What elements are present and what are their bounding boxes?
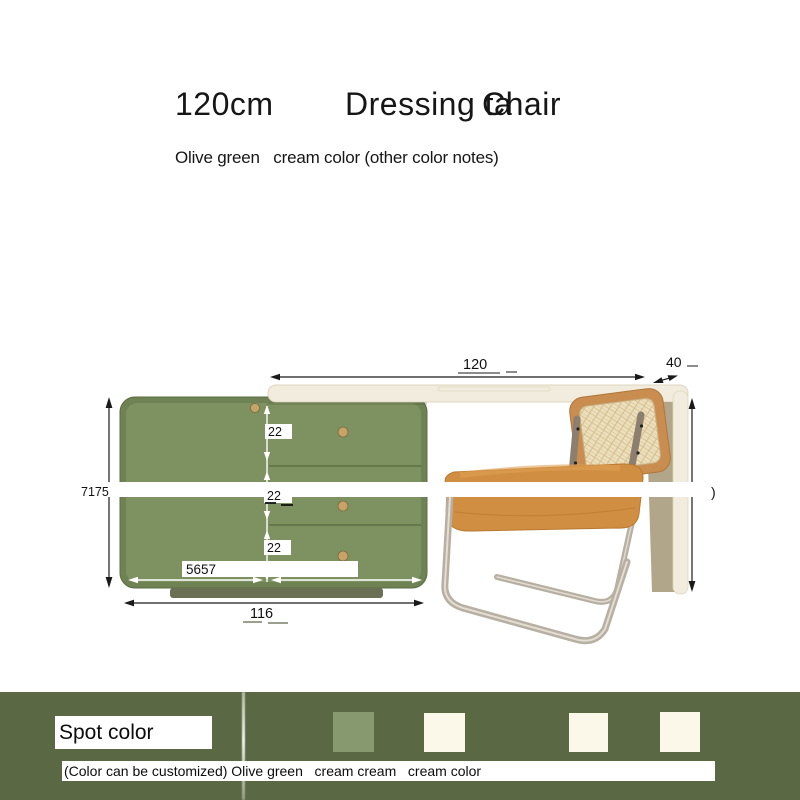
dim-label-bottom-width: 116 [250, 606, 273, 622]
chair [445, 387, 672, 641]
page-title-name-cut: Chair [482, 86, 561, 123]
page-title-size: 120cm [175, 86, 274, 123]
furniture-dimension-diagram: 120 40 116 22 [0, 330, 800, 675]
band-light-seam [242, 692, 245, 800]
dim-label-drawer-1: 22 [268, 425, 282, 439]
tabletop-shadow [268, 402, 427, 405]
dim-label-depth: 40 [666, 354, 682, 370]
swatch-olive-green [333, 712, 374, 752]
chair-frame-far-highlight [497, 522, 632, 602]
cabinet-plinth [170, 588, 383, 598]
swatch-cream-3 [660, 712, 700, 752]
dim-label-drawer-3: 22 [267, 541, 281, 555]
dim-label-left-height: 7175 [81, 485, 109, 499]
swatch-cream-2 [569, 713, 608, 752]
drawer-knob-2 [338, 501, 348, 511]
backrest-cane-mesh [579, 398, 662, 472]
dim-label-drawer-2: 22 [267, 489, 281, 503]
dim-top-width [270, 372, 645, 380]
door-knob [251, 404, 260, 413]
spot-color-band: Spot color (Color can be customized) Oli… [0, 692, 800, 800]
page-subtitle: Olive green cream color (other color not… [175, 148, 499, 168]
chair-seat [445, 464, 643, 531]
drawer-knob-3 [338, 551, 348, 561]
chair-frame-far [497, 522, 632, 602]
dim-label-split-width: 5657 [186, 562, 216, 577]
redaction-band [0, 482, 800, 497]
spot-color-label: Spot color [55, 716, 212, 749]
customization-note: (Color can be customized) Olive green cr… [62, 761, 715, 781]
dim-bottom-width [124, 600, 424, 623]
swatch-cream-1 [424, 713, 465, 752]
drawer-knob-1 [338, 427, 348, 437]
truncated-text-remnant: ) [711, 484, 716, 500]
dim-label-top-width: 120 [463, 357, 487, 373]
product-infographic: 120cm Dressing ta Chair Olive green crea… [0, 0, 800, 800]
